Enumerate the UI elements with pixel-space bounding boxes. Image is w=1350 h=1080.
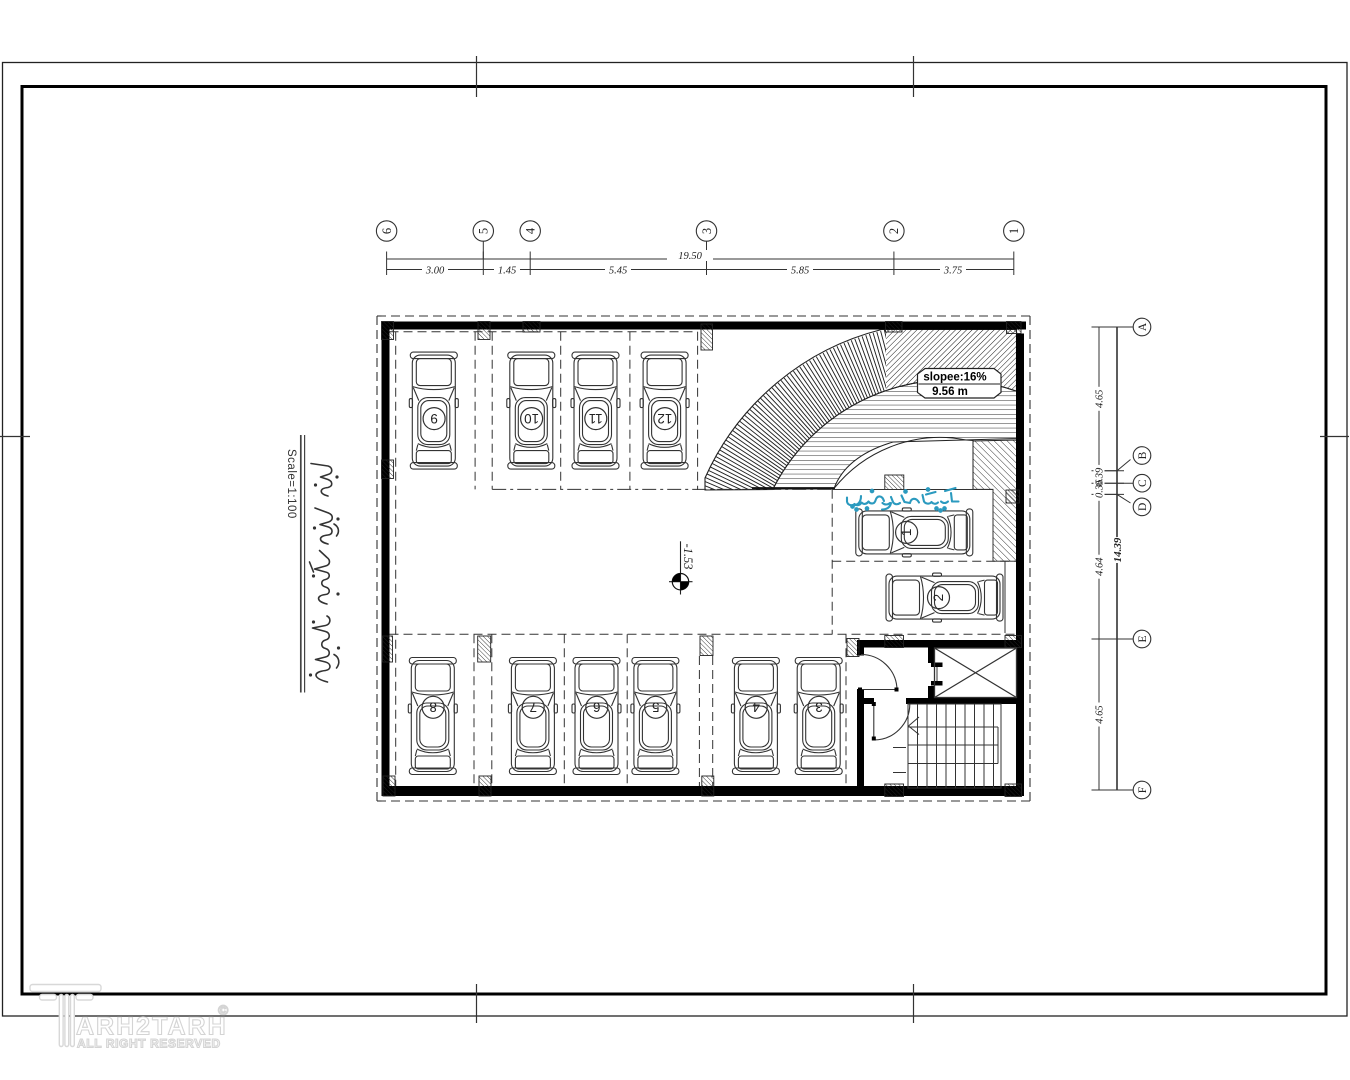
- svg-text:14.39: 14.39: [1112, 537, 1124, 562]
- svg-text:3.00: 3.00: [425, 266, 445, 277]
- svg-text:10: 10: [524, 411, 539, 426]
- svg-text:3: 3: [700, 228, 714, 234]
- svg-text:1: 1: [1007, 228, 1021, 234]
- svg-text:D: D: [1137, 503, 1149, 511]
- svg-text:B: B: [1137, 451, 1149, 459]
- svg-text:©: ©: [218, 1002, 229, 1018]
- svg-text:7: 7: [529, 700, 537, 715]
- svg-text:E: E: [1137, 635, 1149, 642]
- svg-text:2: 2: [887, 228, 901, 234]
- svg-text:4: 4: [752, 700, 760, 715]
- svg-text:Scale=1:100: Scale=1:100: [285, 449, 297, 519]
- svg-text:4.65: 4.65: [1095, 390, 1106, 408]
- svg-text:6: 6: [380, 228, 394, 234]
- svg-text:-1.53: -1.53: [681, 544, 695, 570]
- svg-text:0.36: 0.36: [1095, 479, 1106, 498]
- svg-text:ALL RIGHT RESERVED: ALL RIGHT RESERVED: [77, 1037, 221, 1051]
- svg-text:C: C: [1137, 479, 1149, 487]
- svg-text:9.56 m: 9.56 m: [932, 386, 968, 398]
- svg-text:5.85: 5.85: [791, 266, 809, 277]
- svg-text:5: 5: [477, 228, 491, 234]
- svg-text:A: A: [1137, 322, 1149, 331]
- svg-text:6: 6: [593, 700, 601, 715]
- svg-text:9: 9: [430, 411, 438, 426]
- svg-text:F: F: [1137, 787, 1149, 793]
- svg-text:2: 2: [931, 594, 946, 602]
- svg-text:4.64: 4.64: [1095, 557, 1106, 576]
- svg-text:5: 5: [652, 700, 660, 715]
- svg-text:11: 11: [589, 411, 603, 426]
- svg-text:4.65: 4.65: [1095, 705, 1106, 723]
- svg-text:3.75: 3.75: [943, 266, 962, 277]
- svg-text:12: 12: [657, 411, 672, 426]
- svg-text:8: 8: [429, 700, 437, 715]
- svg-text:1.45: 1.45: [498, 266, 516, 277]
- svg-text:slopee:16%: slopee:16%: [923, 372, 986, 384]
- svg-text:1: 1: [899, 529, 914, 537]
- svg-text:19.50: 19.50: [678, 251, 702, 262]
- svg-text:5.45: 5.45: [609, 266, 627, 277]
- svg-text:3: 3: [815, 700, 823, 715]
- svg-text:4: 4: [524, 227, 538, 234]
